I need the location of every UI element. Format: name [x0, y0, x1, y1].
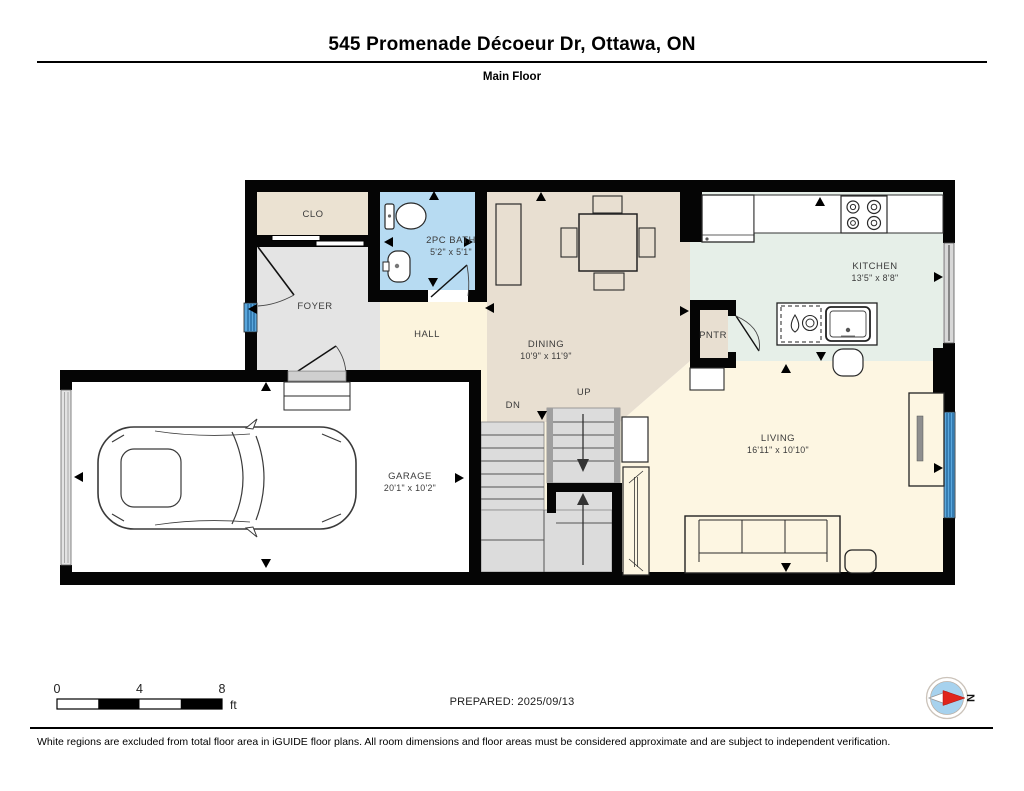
foyer-label: FOYER	[297, 301, 332, 312]
stairs-down-label: DN	[506, 400, 521, 411]
closet-label: CLO	[302, 209, 323, 220]
kitchen-island	[777, 303, 877, 345]
page-title: 545 Promenade Décoeur Dr, Ottawa, ON	[0, 34, 1024, 56]
fridge	[702, 195, 754, 242]
island-sink	[826, 307, 870, 341]
bath-label: 2PC BATH	[426, 235, 476, 246]
garage-steps	[284, 371, 350, 410]
bath-dims: 5'2" x 5'1"	[430, 247, 472, 257]
hall-label: HALL	[414, 329, 440, 340]
footer-divider	[30, 727, 993, 729]
kitchen-label: KITCHEN	[852, 261, 897, 272]
floor-plan-page: 545 Promenade Décoeur Dr, Ottawa, ON Mai…	[0, 0, 1024, 791]
pantry-label: PNTR	[699, 330, 727, 341]
floor-plan-drawing: CLO 2PC BATH 5'2" x 5'1" FOYER HALL DINI…	[0, 165, 1024, 635]
car	[98, 419, 356, 537]
scale-tick-8: 8	[219, 682, 226, 696]
tall-cabinet	[623, 467, 649, 575]
stairs-winder	[481, 510, 612, 572]
garage-dims: 20'1" x 10'2"	[384, 483, 436, 493]
kitchen-dims: 13'5" x 8'8"	[852, 273, 899, 283]
garage-label: GARAGE	[388, 471, 432, 482]
prepared-date: PREPARED: 2025/09/13	[0, 696, 1024, 708]
dining-dims: 10'9" x 11'9"	[520, 351, 572, 361]
floor-name: Main Floor	[0, 71, 1024, 83]
stairs-up-label: UP	[577, 387, 591, 398]
garage-door	[61, 390, 71, 565]
tv	[917, 416, 923, 461]
disclaimer-text: White regions are excluded from total fl…	[37, 736, 987, 748]
staircase	[481, 408, 622, 572]
toilet	[385, 203, 426, 229]
stove	[841, 196, 887, 233]
sofa	[685, 516, 840, 573]
kitchen-patio-door	[944, 243, 954, 343]
island-stool	[833, 349, 863, 376]
tv-cabinet	[909, 393, 944, 486]
living-shelf	[622, 417, 648, 462]
scale-tick-4: 4	[136, 682, 143, 696]
title-divider	[37, 61, 987, 63]
ottoman	[845, 550, 876, 573]
pantry-cabinet	[690, 368, 724, 390]
living-window	[944, 412, 955, 518]
dining-sideboard	[496, 204, 521, 285]
scale-tick-0: 0	[54, 682, 61, 696]
living-label: LIVING	[761, 433, 795, 444]
living-dims: 16'11" x 10'10"	[747, 445, 809, 455]
dining-label: DINING	[528, 339, 564, 350]
